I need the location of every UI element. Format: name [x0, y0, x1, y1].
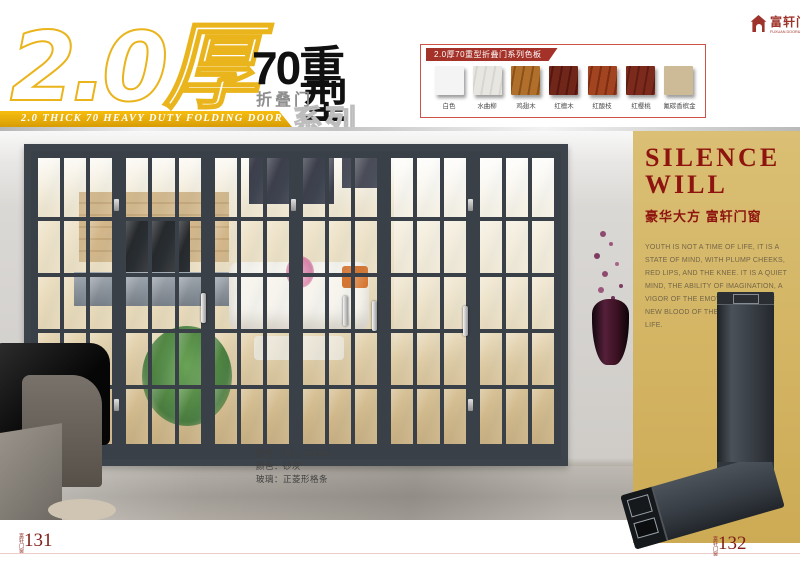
door-panel — [119, 151, 207, 459]
logo-name-cn: 富轩门窗 — [770, 13, 800, 30]
glass-pane — [62, 156, 88, 219]
glass-pane — [239, 387, 265, 446]
glass-pane — [504, 387, 530, 446]
glass-pane — [213, 331, 239, 387]
glass-pane — [389, 156, 415, 219]
purple-vase — [592, 299, 629, 365]
glass-pane — [88, 219, 114, 275]
door-handle — [343, 296, 348, 326]
glass-pane — [124, 219, 150, 275]
swatch-label: 红檀木 — [548, 101, 579, 110]
glass-pane — [177, 275, 203, 331]
vase-flowers — [600, 231, 606, 237]
product-glass: 玻璃：正菱形格条 — [256, 473, 330, 486]
glass-pane — [530, 219, 556, 275]
glass-pane — [504, 275, 530, 331]
glass-pane — [504, 219, 530, 275]
glass-pane — [301, 219, 327, 275]
swatch-chip — [435, 66, 464, 95]
glass-pane — [62, 275, 88, 331]
swatch-label: 水曲柳 — [472, 101, 503, 110]
color-swatch: 氟碳香槟金 — [662, 66, 696, 111]
glass-pane — [265, 156, 291, 219]
product-color: 颜色：砂灰 — [256, 460, 330, 473]
brand-logo: 富轩门窗 FUXUAN DOOR&WINDOW — [750, 13, 800, 36]
swatch-chip — [588, 66, 617, 95]
glass-pane — [239, 219, 265, 275]
glass-pane — [124, 331, 150, 387]
glass-pane — [389, 387, 415, 446]
color-board-title: 2.0厚70重型折叠门系列色板 — [426, 48, 558, 61]
glass-pane — [213, 275, 239, 331]
glass-pane — [265, 387, 291, 446]
color-swatch: 水曲柳 — [470, 66, 504, 111]
door-panel — [208, 151, 296, 459]
glass-pane — [124, 156, 150, 219]
logo-name-en: FUXUAN DOOR&WINDOW — [770, 30, 800, 35]
door-hinge — [114, 399, 119, 411]
color-swatch: 红樱桃 — [624, 66, 658, 111]
glass-pane — [88, 275, 114, 331]
glass-pane — [442, 219, 468, 275]
glass-pane — [239, 331, 265, 387]
glass-pane — [389, 219, 415, 275]
glass-pane — [327, 387, 353, 446]
door-handle — [372, 301, 377, 331]
side-subtitle: 豪华大方 富轩门窗 — [645, 206, 788, 225]
door-hinge — [291, 199, 296, 211]
side-title: SILENCE WILL — [645, 144, 788, 198]
swatch-label: 鸡翅木 — [510, 101, 541, 110]
glass-pane — [36, 275, 62, 331]
page-number: 131 — [24, 530, 53, 552]
glass-pane — [213, 387, 239, 446]
house-logo-icon — [750, 15, 767, 32]
swatch-chip — [549, 66, 578, 95]
door-handle — [463, 306, 468, 336]
glass-pane — [389, 275, 415, 331]
glass-pane — [124, 387, 150, 446]
glass-pane — [478, 275, 504, 331]
glass-pane — [478, 156, 504, 219]
side-title-line2: WILL — [645, 171, 788, 198]
glass-pane — [265, 219, 291, 275]
page-number: 132 — [718, 533, 747, 555]
glass-pane — [353, 219, 379, 275]
swatch-label: 氟碳香槟金 — [663, 101, 694, 110]
swatch-chip — [511, 66, 540, 95]
beige-rug — [48, 499, 116, 520]
glass-pane — [415, 331, 441, 387]
glass-pane — [442, 387, 468, 446]
catalog-page: 2.0厚 70重 型 折叠门 系列 2.0 THICK 70 HEAVY DUT… — [0, 0, 800, 570]
glass-pane — [504, 156, 530, 219]
glass-pane — [265, 331, 291, 387]
glass-pane — [327, 219, 353, 275]
side-title-line1: SILENCE — [645, 144, 788, 171]
color-swatch: 鸡翅木 — [509, 66, 543, 111]
glass-pane — [301, 156, 327, 219]
glass-pane — [353, 156, 379, 219]
glass-pane — [504, 331, 530, 387]
glass-pane — [478, 219, 504, 275]
door-hinge — [468, 399, 473, 411]
glass-pane — [327, 331, 353, 387]
glass-pane — [415, 275, 441, 331]
footer-line — [0, 553, 800, 554]
glass-pane — [150, 156, 176, 219]
color-board: 2.0厚70重型折叠门系列色板 白色水曲柳鸡翅木红檀木红酸枝红樱桃氟碳香槟金 — [420, 44, 706, 118]
side-body-text: YOUTH IS NOT A TIME OF LIFE, IT IS A STA… — [645, 241, 788, 332]
glass-pane — [415, 219, 441, 275]
glass-pane — [62, 219, 88, 275]
glass-pane — [177, 219, 203, 275]
color-swatch: 红酸枝 — [585, 66, 619, 111]
glass-pane — [530, 156, 556, 219]
swatch-row: 白色水曲柳鸡翅木红檀木红酸枝红樱桃氟碳香槟金 — [432, 66, 696, 111]
glass-pane — [478, 387, 504, 446]
glass-pane — [150, 331, 176, 387]
color-swatch: 红檀木 — [547, 66, 581, 111]
door-panel — [384, 151, 472, 459]
glass-pane — [177, 156, 203, 219]
glass-pane — [150, 275, 176, 331]
glass-pane — [415, 156, 441, 219]
product-info: 型号：FX - 15103 颜色：砂灰 玻璃：正菱形格条 — [256, 447, 330, 486]
glass-pane — [327, 275, 353, 331]
glass-pane — [442, 331, 468, 387]
glass-pane — [530, 387, 556, 446]
swatch-chip — [664, 66, 693, 95]
big-thickness-title: 2.0厚 — [10, 18, 253, 118]
page-marker: 富轩门窗 — [18, 533, 23, 553]
swatch-chip — [473, 66, 502, 95]
glass-pane — [124, 275, 150, 331]
glass-pane — [389, 331, 415, 387]
glass-pane — [301, 387, 327, 446]
glass-pane — [265, 275, 291, 331]
showroom-photo: 型号：FX - 15103 颜色：砂灰 玻璃：正菱形格条 — [0, 131, 633, 520]
glass-pane — [239, 275, 265, 331]
page-number-right: 富轩门窗 132 — [712, 533, 747, 556]
glass-pane — [415, 387, 441, 446]
glass-pane — [442, 156, 468, 219]
glass-pane — [150, 387, 176, 446]
door-hinge — [468, 199, 473, 211]
glass-pane — [478, 331, 504, 387]
door-handle — [201, 293, 206, 323]
product-model: 型号：FX - 15103 — [256, 447, 330, 460]
swatch-chip — [626, 66, 655, 95]
door-panel — [473, 151, 561, 459]
glass-pane — [301, 331, 327, 387]
swatch-label: 白色 — [433, 101, 464, 110]
glass-pane — [36, 219, 62, 275]
page-number-left: 富轩门窗 131 — [18, 530, 53, 553]
glass-pane — [213, 219, 239, 275]
glass-pane — [353, 387, 379, 446]
swatch-label: 红樱桃 — [625, 101, 656, 110]
glass-pane — [239, 156, 265, 219]
page-marker: 富轩门窗 — [712, 536, 717, 556]
glass-pane — [327, 156, 353, 219]
glass-pane — [177, 331, 203, 387]
glass-pane — [530, 275, 556, 331]
color-swatch: 白色 — [432, 66, 466, 111]
door-hinge — [114, 199, 119, 211]
logo-text: 富轩门窗 FUXUAN DOOR&WINDOW — [770, 13, 800, 36]
glass-pane — [36, 156, 62, 219]
swatch-label: 红酸枝 — [587, 101, 618, 110]
glass-pane — [150, 219, 176, 275]
glass-pane — [88, 156, 114, 219]
glass-pane — [530, 331, 556, 387]
side-panel: SILENCE WILL 豪华大方 富轩门窗 YOUTH IS NOT A TI… — [633, 131, 800, 543]
glass-pane — [301, 275, 327, 331]
glass-pane — [177, 387, 203, 446]
glass-pane — [353, 331, 379, 387]
glass-pane — [213, 156, 239, 219]
series-banner: 2.0 THICK 70 HEAVY DUTY FOLDING DOOR SER… — [0, 111, 292, 127]
